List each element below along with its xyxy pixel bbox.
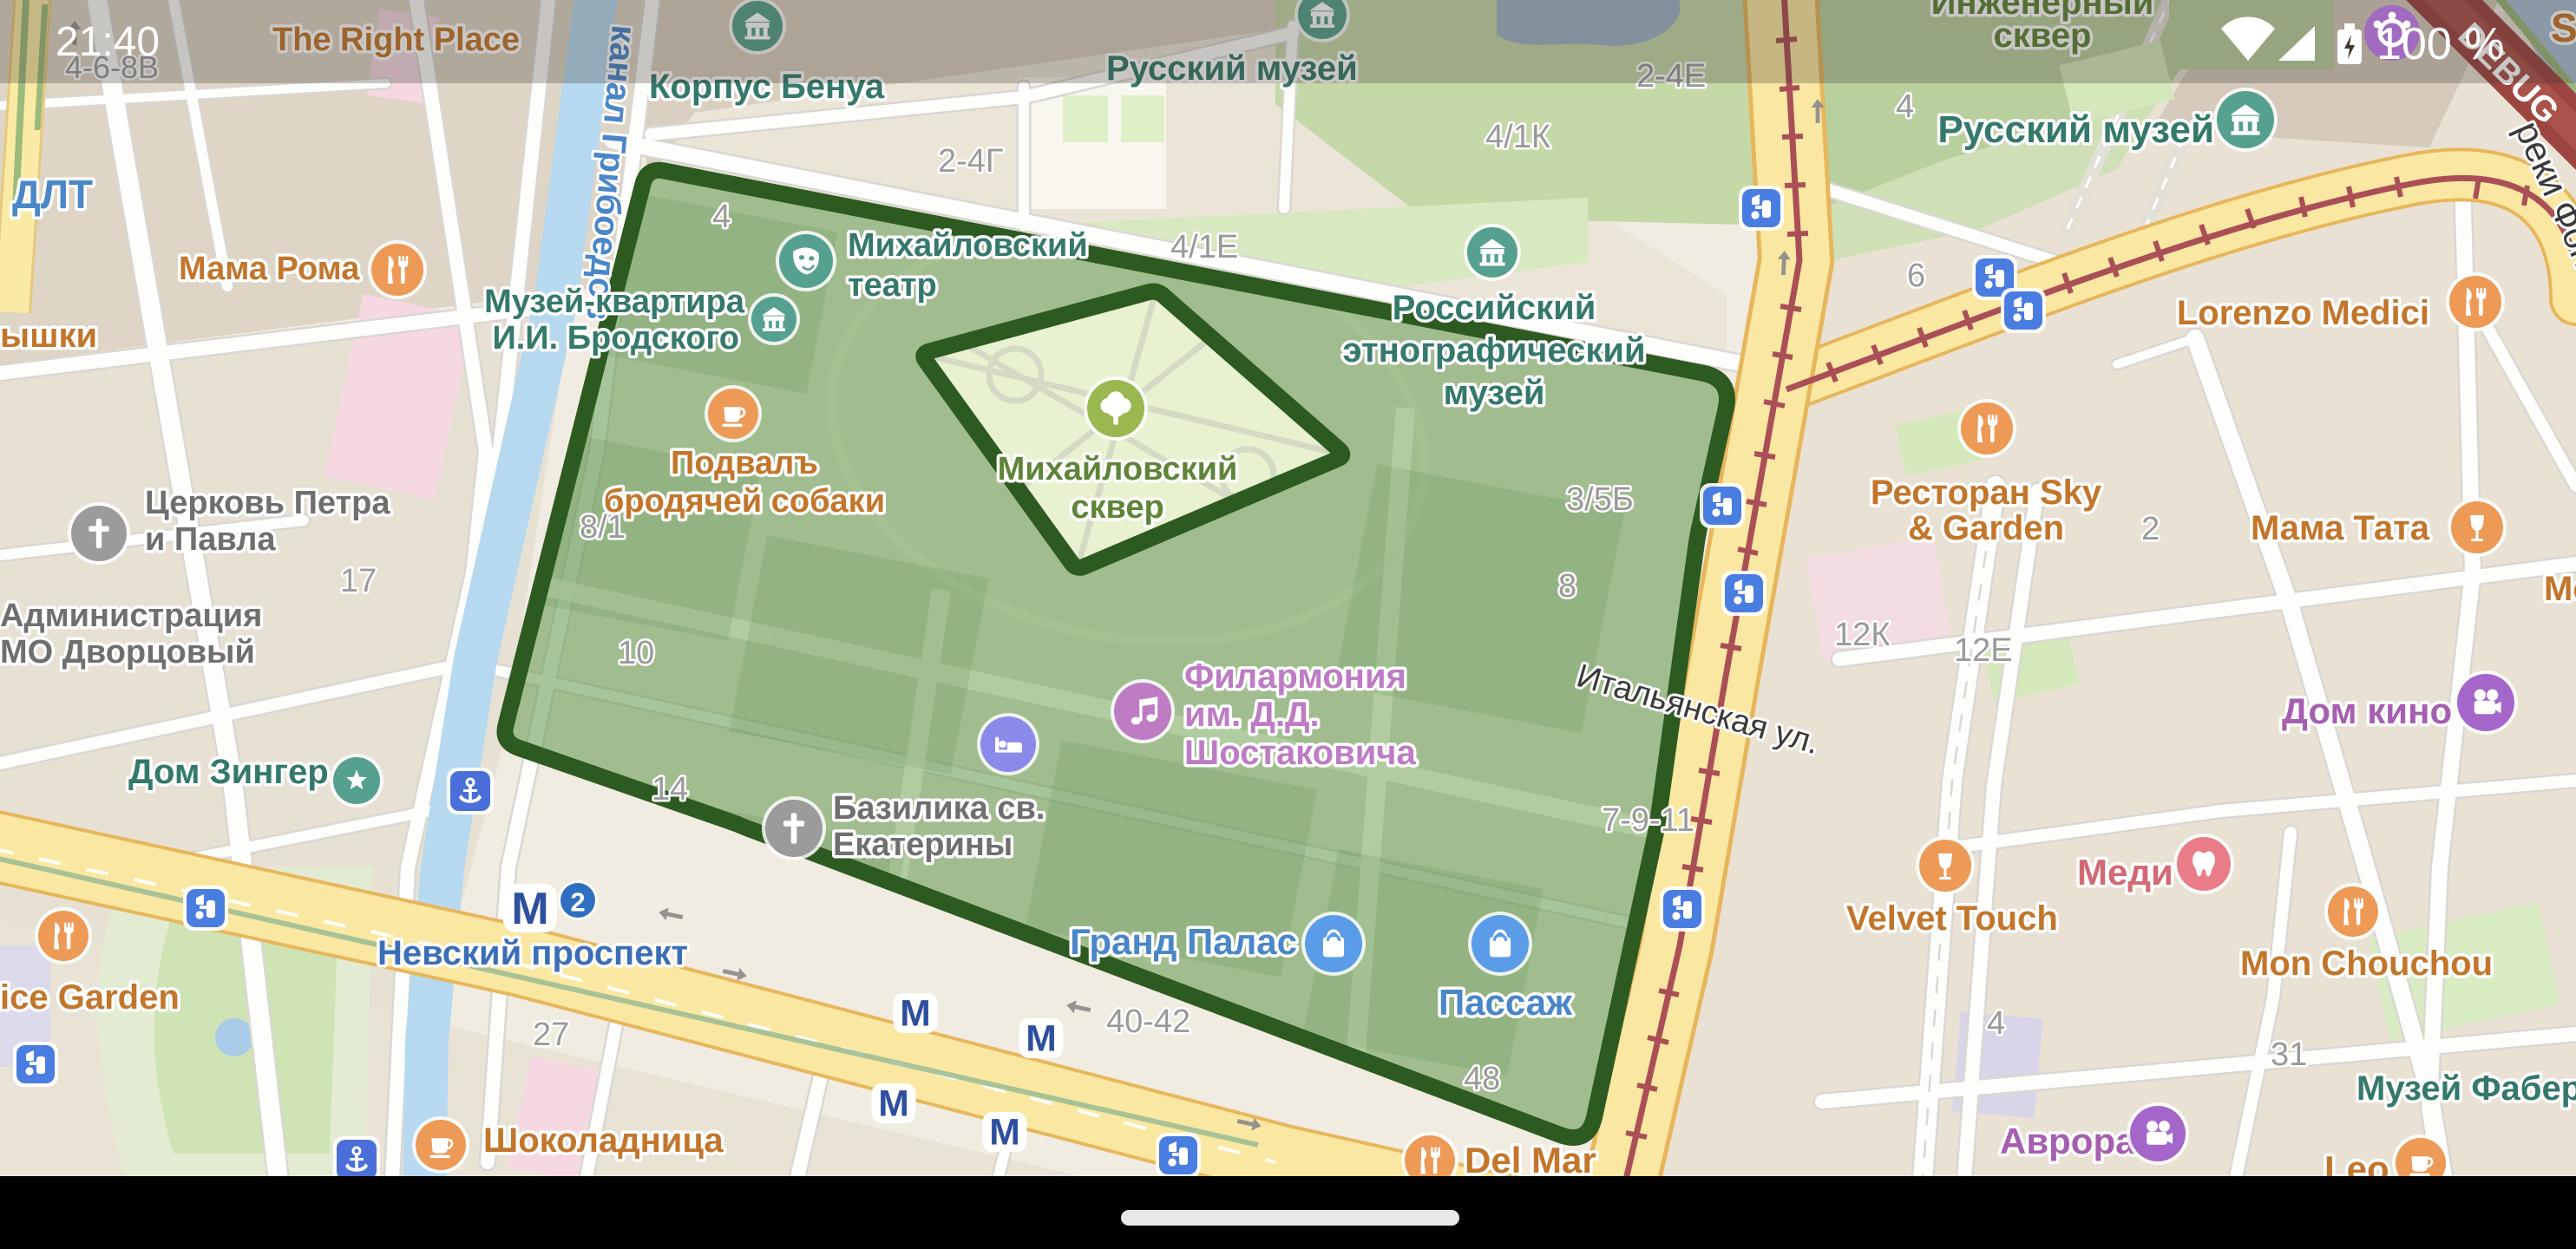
svg-text:21:40: 21:40 xyxy=(56,19,160,65)
svg-text:4/1Е: 4/1Е xyxy=(1170,229,1238,265)
svg-text:Ресторан Sky: Ресторан Sky xyxy=(1871,474,2102,512)
svg-text:Базилика св.: Базилика св. xyxy=(833,790,1045,827)
svg-text:Русский музей: Русский музей xyxy=(1937,108,2214,151)
svg-text:2-4Г: 2-4Г xyxy=(938,143,1004,180)
svg-text:Дом Зингер: Дом Зингер xyxy=(128,753,329,791)
svg-text:этнографический: этнографический xyxy=(1342,331,1645,369)
svg-text:ДЛТ: ДЛТ xyxy=(12,172,93,217)
svg-text:100 %: 100 % xyxy=(2376,19,2504,69)
svg-text:театр: театр xyxy=(848,267,937,304)
svg-text:Мама Тата: Мама Тата xyxy=(2251,509,2430,547)
svg-text:M: M xyxy=(1026,1018,1057,1060)
svg-text:8/1: 8/1 xyxy=(580,509,626,546)
svg-text:12К: 12К xyxy=(1834,617,1890,653)
svg-text:14: 14 xyxy=(652,771,688,808)
svg-text:10: 10 xyxy=(618,635,654,671)
svg-text:& Garden: & Garden xyxy=(1908,509,2064,547)
svg-text:Российский: Российский xyxy=(1393,289,1596,327)
svg-text:Филармония: Филармония xyxy=(1184,657,1406,696)
svg-text:Дом кино: Дом кино xyxy=(2282,690,2452,731)
svg-text:4: 4 xyxy=(712,199,731,235)
svg-text:4: 4 xyxy=(1896,88,1914,125)
svg-text:Мама Рома: Мама Рома xyxy=(179,251,360,287)
svg-text:M: M xyxy=(989,1112,1020,1154)
svg-text:Шостаковича: Шостаковича xyxy=(1184,734,1417,772)
svg-text:31: 31 xyxy=(2271,1036,2307,1073)
svg-text:17: 17 xyxy=(340,563,377,599)
svg-text:4/1К: 4/1К xyxy=(1485,119,1550,155)
svg-text:M: M xyxy=(878,1083,909,1125)
svg-text:6: 6 xyxy=(1907,258,1925,294)
svg-text:сквер: сквер xyxy=(1071,489,1163,526)
svg-text:48: 48 xyxy=(1464,1061,1500,1097)
svg-text:27: 27 xyxy=(533,1017,569,1053)
svg-text:Подвалъ: Подвалъ xyxy=(671,445,818,481)
svg-text:12Е: 12Е xyxy=(1954,632,2013,669)
svg-text:И.И. Бродского: И.И. Бродского xyxy=(492,320,739,356)
svg-text:Mon Chouchou: Mon Chouchou xyxy=(2240,945,2493,983)
svg-text:Невский проспект: Невский проспект xyxy=(377,934,688,972)
svg-text:и Павла: и Павла xyxy=(145,521,276,558)
svg-text:8: 8 xyxy=(1558,568,1576,605)
svg-text:3/5Б: 3/5Б xyxy=(1566,481,1634,518)
svg-text:им. Д.Д.: им. Д.Д. xyxy=(1184,696,1320,734)
svg-text:Lorenzo Medici: Lorenzo Medici xyxy=(2177,294,2429,332)
svg-text:M: M xyxy=(900,993,931,1035)
svg-text:2: 2 xyxy=(570,886,585,917)
svg-text:Михайловский: Михайловский xyxy=(848,227,1088,264)
svg-text:Екатерины: Екатерины xyxy=(833,827,1013,863)
svg-text:Администрация: Администрация xyxy=(0,598,262,634)
svg-text:Музей-квартира: Музей-квартира xyxy=(484,284,745,320)
svg-text:Гранд Палас: Гранд Палас xyxy=(1070,921,1297,962)
svg-text:бродячей собаки: бродячей собаки xyxy=(604,483,885,520)
svg-text:Шоколадница: Шоколадница xyxy=(483,1121,724,1160)
svg-text:ice Garden: ice Garden xyxy=(0,978,180,1017)
svg-text:Аврора: Аврора xyxy=(2000,1121,2136,1161)
svg-text:музей: музей xyxy=(1444,374,1545,412)
svg-text:Музей Фаберж: Музей Фаберж xyxy=(2356,1069,2576,1108)
svg-text:ышки: ышки xyxy=(0,317,97,355)
svg-text:M: M xyxy=(511,884,548,934)
svg-text:Del Mar: Del Mar xyxy=(1465,1140,1596,1180)
svg-text:Velvet Touch: Velvet Touch xyxy=(1846,899,2058,938)
svg-text:Пассаж: Пассаж xyxy=(1439,982,1573,1023)
svg-text:4: 4 xyxy=(1987,1005,2005,1042)
svg-text:МО Дворцовый: МО Дворцовый xyxy=(0,634,255,670)
svg-text:7-9-11: 7-9-11 xyxy=(1602,802,1694,839)
svg-text:40-42: 40-42 xyxy=(1106,1004,1190,1040)
svg-text:Церковь Петра: Церковь Петра xyxy=(145,485,390,521)
svg-text:Мечта: Мечта xyxy=(2544,570,2576,608)
svg-text:Меди: Меди xyxy=(2077,852,2173,893)
svg-text:2: 2 xyxy=(2141,511,2160,547)
svg-text:Михайловский: Михайловский xyxy=(998,451,1238,487)
